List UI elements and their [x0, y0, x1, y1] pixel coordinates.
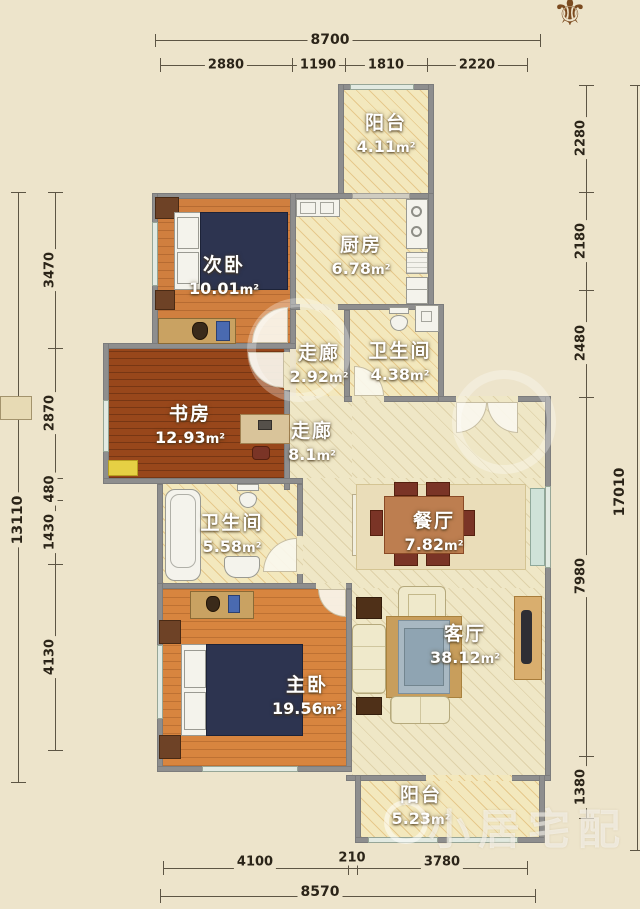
yellow-mat [108, 460, 138, 476]
monitor [228, 595, 240, 613]
dim-tick [579, 290, 594, 291]
room-label-kitchen: 厨房 6.78m² [332, 230, 391, 278]
dim-label: 4130 [43, 636, 58, 678]
sofa-long [352, 624, 386, 694]
dim-label: 1810 [365, 58, 407, 73]
armchair-seat [408, 594, 436, 618]
sink-basin [320, 202, 334, 214]
nightstand [159, 735, 181, 759]
wall [103, 478, 303, 484]
dim-line [160, 896, 535, 897]
window [350, 84, 414, 90]
dim-tick [48, 348, 63, 349]
loveseat [390, 696, 450, 724]
room-label-corridor2: 走廊 8.1m² [288, 416, 336, 464]
window [545, 486, 551, 568]
counter-cabinet [406, 252, 428, 274]
dim-tick [292, 58, 293, 72]
dim-line [586, 85, 587, 818]
bathroom-sink [224, 556, 260, 578]
pillow [177, 217, 199, 249]
dim-tick [345, 58, 346, 72]
desk-item [258, 420, 272, 430]
room-label-living: 客厅 38.12m² [430, 619, 500, 667]
watermark-ring [452, 370, 556, 474]
dim-tick [155, 34, 156, 47]
desk-chair [192, 322, 208, 340]
dim-tick [579, 756, 594, 757]
dim-label: 17010 [612, 465, 628, 520]
window-seat [530, 488, 545, 566]
dim-tick [535, 889, 536, 903]
fridge-door-line [406, 289, 428, 290]
pillow [184, 692, 206, 730]
dim-line [18, 192, 19, 782]
dim-tick [579, 192, 594, 193]
room-label-bathroom1: 卫生间 4.38m² [368, 336, 431, 384]
wall [157, 484, 163, 588]
wall [428, 193, 434, 310]
side-table [356, 597, 382, 619]
room-label-balcony-top: 阳台 4.11m² [357, 108, 416, 156]
door-gap [352, 396, 384, 402]
room-label-master: 主卧 19.56m² [272, 670, 342, 718]
dim-label: 8570 [298, 884, 343, 900]
dim-label: 4100 [234, 855, 276, 870]
pillow [184, 650, 206, 688]
dim-tick [527, 861, 528, 875]
dining-chair [370, 510, 383, 536]
dim-tick [48, 564, 63, 565]
wall [355, 775, 361, 843]
desk [190, 591, 254, 619]
window [103, 400, 109, 452]
dim-tick [11, 782, 26, 783]
room-label-study: 书房 12.93m² [155, 399, 225, 447]
room-label-bathroom2: 卫生间 5.58m² [200, 508, 263, 556]
dim-label: 1190 [297, 58, 339, 73]
dim-line [163, 868, 527, 869]
dim-tick [48, 750, 63, 751]
tv [521, 610, 532, 664]
left-sill-marker [0, 396, 32, 420]
burner [411, 226, 422, 237]
sink-basin [300, 202, 316, 214]
watermark-logo [384, 800, 428, 844]
dim-label: 2480 [574, 322, 589, 364]
dim-label: 210 [335, 851, 368, 866]
dim-label: 8700 [308, 32, 353, 48]
nightstand [155, 290, 175, 310]
dim-tick [579, 397, 594, 398]
dim-tick [540, 34, 541, 47]
dim-label: 13110 [10, 493, 26, 548]
dim-tick [630, 85, 640, 86]
dining-chair [394, 552, 418, 566]
floor-plan-canvas: 阳台 4.11m² 厨房 6.78m² 次卧 10.01m² 走廊 2.92m²… [0, 0, 640, 909]
dim-tick [630, 850, 640, 851]
window [202, 766, 298, 772]
dim-label: 2280 [574, 117, 589, 159]
dim-tick [163, 861, 164, 875]
burner [411, 206, 422, 217]
room-label-dining: 餐厅 7.82m² [405, 506, 464, 554]
wall [428, 84, 434, 199]
dim-label: 1430 [43, 511, 58, 553]
watermark-text: 小居宅配 [428, 796, 628, 857]
dim-tick [48, 192, 63, 193]
dim-label: 2880 [205, 58, 247, 73]
dining-chair [394, 482, 418, 496]
toilet-tank [237, 484, 259, 491]
window [152, 222, 158, 286]
dining-chair [426, 552, 450, 566]
dining-chair [426, 482, 450, 496]
side-table [356, 697, 382, 715]
washer-door [421, 311, 432, 322]
wall [545, 396, 551, 781]
dim-tick [579, 85, 594, 86]
dim-label: 480 [43, 472, 58, 505]
dim-label: 2870 [43, 392, 58, 434]
dim-tick [427, 58, 428, 72]
dim-tick [527, 58, 528, 72]
dim-tick [160, 58, 161, 72]
dim-tick [160, 889, 161, 903]
toilet-tank [389, 307, 409, 314]
dim-tick [11, 192, 26, 193]
window [157, 645, 163, 719]
door-gap [297, 536, 303, 574]
desk-chair [206, 596, 220, 612]
wall [338, 84, 344, 199]
balcony-slider [352, 193, 410, 199]
study-chair [252, 446, 270, 460]
dim-label: 2220 [456, 58, 498, 73]
dim-label: 2180 [574, 220, 589, 262]
room-label-corridor1: 走廊 2.92m² [290, 338, 349, 386]
dim-label: 7980 [574, 555, 589, 597]
nightstand [159, 620, 181, 644]
room-label-bedroom2: 次卧 10.01m² [189, 250, 259, 298]
dim-label: 3470 [43, 249, 58, 291]
fridge [406, 277, 428, 304]
north-compass-icon: ⚜ [552, 0, 588, 32]
bathtub-inner [170, 494, 196, 568]
dim-line [637, 85, 638, 850]
monitor [216, 321, 230, 341]
